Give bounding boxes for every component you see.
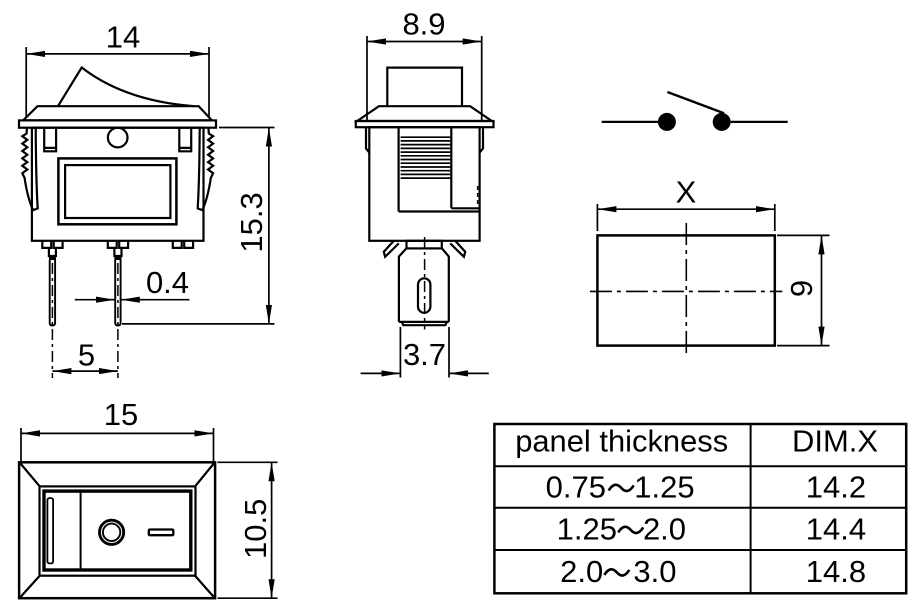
svg-text:5: 5 <box>78 338 95 373</box>
svg-text:1.25: 1.25 <box>634 470 694 505</box>
svg-text:10.5: 10.5 <box>238 499 273 559</box>
svg-text:1.25: 1.25 <box>557 512 617 547</box>
svg-text:DIM.X: DIM.X <box>792 424 878 459</box>
svg-text:14: 14 <box>106 20 140 55</box>
svg-text:14.2: 14.2 <box>806 470 866 505</box>
svg-text:3.7: 3.7 <box>403 337 446 372</box>
svg-text:3.0: 3.0 <box>633 554 676 589</box>
svg-text:15.3: 15.3 <box>234 192 269 252</box>
svg-text:0.75: 0.75 <box>546 470 606 505</box>
svg-text:2.0: 2.0 <box>643 512 686 547</box>
svg-text:9: 9 <box>784 280 819 297</box>
svg-text:14.8: 14.8 <box>806 554 866 589</box>
svg-text:8.9: 8.9 <box>402 6 445 41</box>
svg-text:2.0: 2.0 <box>560 554 603 589</box>
svg-text:0.4: 0.4 <box>146 265 189 300</box>
svg-text:15: 15 <box>104 397 138 432</box>
svg-text:14.4: 14.4 <box>806 512 866 547</box>
svg-text:X: X <box>676 175 697 210</box>
svg-text:panel thickness: panel thickness <box>515 424 728 459</box>
